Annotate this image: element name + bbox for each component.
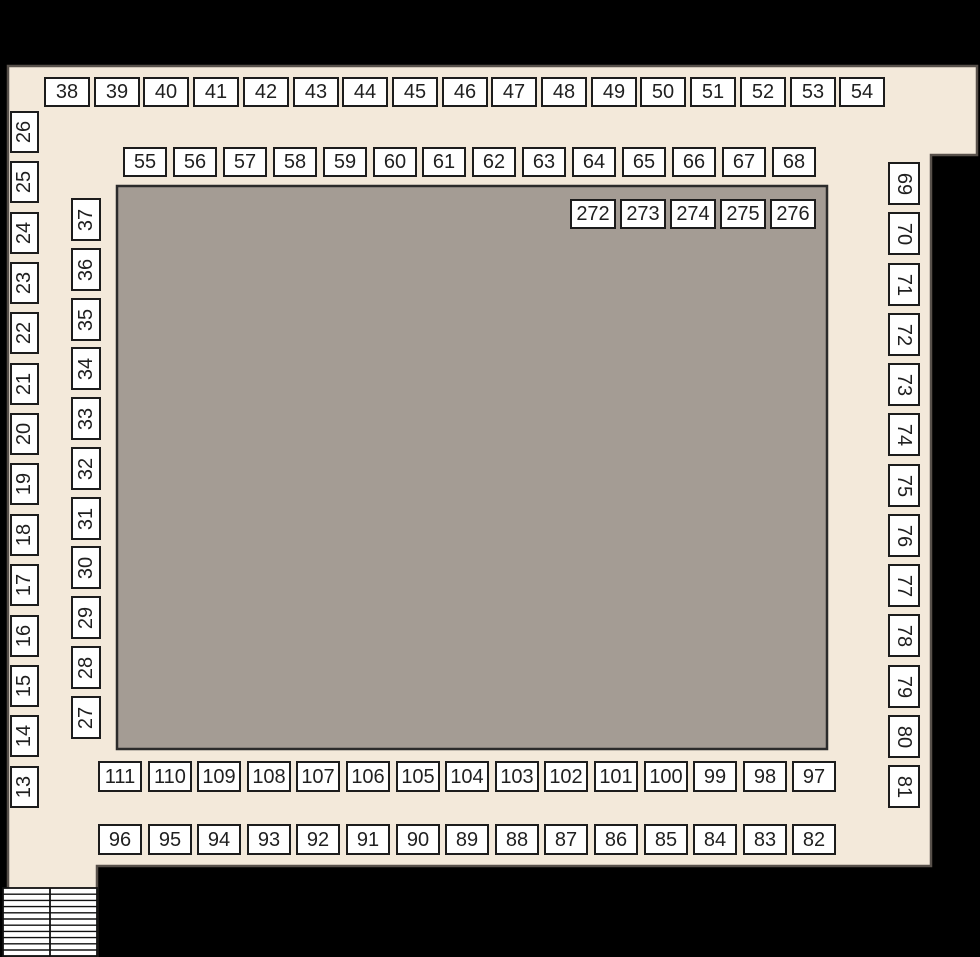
booth-number-label: 21	[15, 373, 35, 395]
booth-91[interactable]: 91	[346, 824, 390, 855]
booth-70[interactable]: 70	[888, 212, 920, 255]
booth-number-label: 59	[334, 152, 356, 172]
booth-number-label: 77	[894, 574, 914, 596]
booth-42[interactable]: 42	[243, 77, 289, 107]
booth-number-label: 14	[15, 725, 35, 747]
booth-number-label: 56	[184, 152, 206, 172]
booth-68[interactable]: 68	[772, 147, 816, 177]
booth-number-label: 23	[15, 272, 35, 294]
booth-60[interactable]: 60	[373, 147, 417, 177]
booth-40[interactable]: 40	[143, 77, 189, 107]
booth-96[interactable]: 96	[98, 824, 142, 855]
booth-57[interactable]: 57	[223, 147, 267, 177]
booth-number-label: 47	[503, 82, 525, 102]
booth-number-label: 31	[76, 507, 96, 529]
booth-number-label: 58	[284, 152, 306, 172]
booth-72[interactable]: 72	[888, 313, 920, 356]
booth-95[interactable]: 95	[148, 824, 192, 855]
booth-110[interactable]: 110	[148, 761, 192, 792]
booth-number-label: 94	[208, 830, 230, 850]
booth-number-label: 62	[483, 152, 505, 172]
booth-number-label: 67	[733, 152, 755, 172]
booth-number-label: 54	[851, 82, 873, 102]
booth-45[interactable]: 45	[392, 77, 438, 107]
booth-number-label: 32	[76, 457, 96, 479]
booth-number-label: 83	[754, 830, 776, 850]
booth-37[interactable]: 37	[71, 198, 101, 241]
booth-number-label: 275	[726, 204, 759, 224]
booth-16[interactable]: 16	[10, 615, 39, 657]
booth-number-label: 74	[894, 423, 914, 445]
booth-number-label: 34	[76, 357, 96, 379]
booth-number-label: 100	[649, 767, 682, 787]
booth-number-label: 40	[155, 82, 177, 102]
booth-101[interactable]: 101	[594, 761, 638, 792]
booth-number-label: 64	[583, 152, 605, 172]
booth-103[interactable]: 103	[495, 761, 539, 792]
booth-43[interactable]: 43	[293, 77, 339, 107]
booth-number-label: 72	[894, 323, 914, 345]
booth-number-label: 78	[894, 624, 914, 646]
booth-102[interactable]: 102	[544, 761, 588, 792]
booth-73[interactable]: 73	[888, 363, 920, 406]
booth-87[interactable]: 87	[544, 824, 588, 855]
booth-58[interactable]: 58	[273, 147, 317, 177]
booth-52[interactable]: 52	[740, 77, 786, 107]
booth-number-label: 24	[15, 222, 35, 244]
booth-number-label: 106	[351, 767, 384, 787]
booth-number-label: 39	[106, 82, 128, 102]
booth-34[interactable]: 34	[71, 347, 101, 390]
booth-number-label: 51	[702, 82, 724, 102]
booth-number-label: 274	[676, 204, 709, 224]
booth-number-label: 50	[652, 82, 674, 102]
booth-number-label: 43	[305, 82, 327, 102]
booth-81[interactable]: 81	[888, 765, 920, 808]
booth-number-label: 273	[626, 204, 659, 224]
booth-109[interactable]: 109	[197, 761, 241, 792]
booth-78[interactable]: 78	[888, 614, 920, 657]
booth-number-label: 46	[454, 82, 476, 102]
booth-47[interactable]: 47	[491, 77, 537, 107]
booth-number-label: 75	[894, 474, 914, 496]
booth-number-label: 87	[555, 830, 577, 850]
booth-number-label: 102	[549, 767, 582, 787]
booth-51[interactable]: 51	[690, 77, 736, 107]
booth-number-label: 17	[15, 574, 35, 596]
booth-number-label: 73	[894, 373, 914, 395]
booth-67[interactable]: 67	[722, 147, 766, 177]
booth-69[interactable]: 69	[888, 162, 920, 205]
booth-number-label: 68	[783, 152, 805, 172]
booth-number-label: 48	[553, 82, 575, 102]
booth-62[interactable]: 62	[472, 147, 516, 177]
booth-88[interactable]: 88	[495, 824, 539, 855]
booth-13[interactable]: 13	[10, 766, 39, 808]
booth-56[interactable]: 56	[173, 147, 217, 177]
booth-63[interactable]: 63	[522, 147, 566, 177]
booth-25[interactable]: 25	[10, 161, 39, 203]
booth-number-label: 16	[15, 625, 35, 647]
booth-number-label: 35	[76, 308, 96, 330]
booth-93[interactable]: 93	[247, 824, 291, 855]
booth-number-label: 26	[15, 121, 35, 143]
booth-22[interactable]: 22	[10, 312, 39, 354]
booth-number-label: 85	[655, 830, 677, 850]
booth-48[interactable]: 48	[541, 77, 587, 107]
booth-number-label: 41	[205, 82, 227, 102]
booth-number-label: 33	[76, 407, 96, 429]
booth-20[interactable]: 20	[10, 413, 39, 455]
booth-number-label: 82	[803, 830, 825, 850]
booth-number-label: 18	[15, 524, 35, 546]
booth-24[interactable]: 24	[10, 212, 39, 254]
booth-number-label: 98	[754, 767, 776, 787]
booth-74[interactable]: 74	[888, 413, 920, 456]
booth-55[interactable]: 55	[123, 147, 167, 177]
booth-number-label: 52	[752, 82, 774, 102]
booth-number-label: 29	[76, 606, 96, 628]
booth-75[interactable]: 75	[888, 464, 920, 507]
booth-276[interactable]: 276	[770, 199, 816, 229]
booth-17[interactable]: 17	[10, 564, 39, 606]
booth-105[interactable]: 105	[396, 761, 440, 792]
booth-108[interactable]: 108	[247, 761, 291, 792]
booth-number-label: 60	[384, 152, 406, 172]
booth-65[interactable]: 65	[622, 147, 666, 177]
booth-number-label: 15	[15, 675, 35, 697]
booth-number-label: 84	[704, 830, 726, 850]
booth-86[interactable]: 86	[594, 824, 638, 855]
booth-80[interactable]: 80	[888, 715, 920, 758]
booth-274[interactable]: 274	[670, 199, 716, 229]
booth-90[interactable]: 90	[396, 824, 440, 855]
booth-44[interactable]: 44	[342, 77, 388, 107]
booth-99[interactable]: 99	[693, 761, 737, 792]
exhibition-floorplan: 3839404142434445464748495051525354555657…	[0, 0, 980, 957]
booth-number-label: 111	[105, 767, 135, 787]
booth-107[interactable]: 107	[296, 761, 340, 792]
booth-14[interactable]: 14	[10, 715, 39, 757]
booth-number-label: 65	[633, 152, 655, 172]
booth-number-label: 79	[894, 675, 914, 697]
booth-number-label: 80	[894, 725, 914, 747]
booth-31[interactable]: 31	[71, 497, 101, 540]
booth-number-label: 89	[456, 830, 478, 850]
booth-26[interactable]: 26	[10, 111, 39, 153]
booth-30[interactable]: 30	[71, 546, 101, 589]
booth-number-label: 27	[76, 706, 96, 728]
booth-number-label: 91	[357, 830, 379, 850]
booth-number-label: 107	[301, 767, 334, 787]
booth-98[interactable]: 98	[743, 761, 787, 792]
booth-number-label: 44	[354, 82, 376, 102]
booth-89[interactable]: 89	[445, 824, 489, 855]
booth-number-label: 96	[109, 830, 131, 850]
booth-number-label: 92	[307, 830, 329, 850]
booth-number-label: 25	[15, 171, 35, 193]
booth-15[interactable]: 15	[10, 665, 39, 707]
booth-number-label: 93	[258, 830, 280, 850]
booth-number-label: 109	[202, 767, 235, 787]
booth-number-label: 19	[15, 473, 35, 495]
booth-number-label: 22	[15, 322, 35, 344]
booth-32[interactable]: 32	[71, 447, 101, 490]
booth-number-label: 36	[76, 258, 96, 280]
booth-84[interactable]: 84	[693, 824, 737, 855]
booth-28[interactable]: 28	[71, 646, 101, 689]
booth-273[interactable]: 273	[620, 199, 666, 229]
booth-272[interactable]: 272	[570, 199, 616, 229]
booth-100[interactable]: 100	[644, 761, 688, 792]
booth-number-label: 103	[500, 767, 533, 787]
booth-106[interactable]: 106	[346, 761, 390, 792]
booth-number-label: 90	[407, 830, 429, 850]
booth-38[interactable]: 38	[44, 77, 90, 107]
booth-39[interactable]: 39	[94, 77, 140, 107]
booth-number-label: 104	[450, 767, 483, 787]
booth-35[interactable]: 35	[71, 298, 101, 341]
stairs-icon	[3, 888, 97, 956]
booth-number-label: 61	[433, 152, 455, 172]
booth-number-label: 28	[76, 656, 96, 678]
booth-number-label: 110	[154, 767, 186, 787]
booth-number-label: 81	[894, 775, 914, 797]
booth-29[interactable]: 29	[71, 596, 101, 639]
booth-number-label: 69	[894, 172, 914, 194]
booth-number-label: 20	[15, 423, 35, 445]
booth-number-label: 97	[803, 767, 825, 787]
booth-97[interactable]: 97	[792, 761, 836, 792]
booth-number-label: 88	[506, 830, 528, 850]
booth-53[interactable]: 53	[790, 77, 836, 107]
booth-27[interactable]: 27	[71, 696, 101, 739]
booth-number-label: 42	[255, 82, 277, 102]
booth-number-label: 108	[252, 767, 285, 787]
booth-number-label: 101	[599, 767, 632, 787]
booth-33[interactable]: 33	[71, 397, 101, 440]
exhibit-hall-area	[117, 186, 827, 749]
booth-23[interactable]: 23	[10, 262, 39, 304]
booth-21[interactable]: 21	[10, 363, 39, 405]
booth-number-label: 37	[76, 208, 96, 230]
booth-number-label: 105	[401, 767, 434, 787]
booth-59[interactable]: 59	[323, 147, 367, 177]
booth-number-label: 55	[134, 152, 156, 172]
booth-104[interactable]: 104	[445, 761, 489, 792]
booth-number-label: 30	[76, 556, 96, 578]
booth-number-label: 70	[894, 222, 914, 244]
booth-number-label: 63	[533, 152, 555, 172]
booth-number-label: 38	[56, 82, 78, 102]
booth-number-label: 276	[776, 204, 809, 224]
booth-number-label: 86	[605, 830, 627, 850]
floorplan-background	[0, 0, 980, 957]
booth-111[interactable]: 111	[98, 761, 142, 792]
booth-41[interactable]: 41	[193, 77, 239, 107]
booth-19[interactable]: 19	[10, 463, 39, 505]
booth-number-label: 57	[234, 152, 256, 172]
booth-71[interactable]: 71	[888, 263, 920, 306]
booth-83[interactable]: 83	[743, 824, 787, 855]
booth-46[interactable]: 46	[442, 77, 488, 107]
booth-number-label: 53	[802, 82, 824, 102]
booth-number-label: 99	[704, 767, 726, 787]
booth-85[interactable]: 85	[644, 824, 688, 855]
booth-76[interactable]: 76	[888, 514, 920, 557]
booth-49[interactable]: 49	[591, 77, 637, 107]
booth-36[interactable]: 36	[71, 248, 101, 291]
booth-18[interactable]: 18	[10, 514, 39, 556]
booth-66[interactable]: 66	[672, 147, 716, 177]
booth-94[interactable]: 94	[197, 824, 241, 855]
booth-number-label: 13	[15, 776, 35, 798]
booth-61[interactable]: 61	[422, 147, 466, 177]
booth-82[interactable]: 82	[792, 824, 836, 855]
booth-275[interactable]: 275	[720, 199, 766, 229]
booth-79[interactable]: 79	[888, 665, 920, 708]
booth-number-label: 95	[159, 830, 181, 850]
booth-92[interactable]: 92	[296, 824, 340, 855]
booth-number-label: 76	[894, 524, 914, 546]
booth-number-label: 71	[894, 273, 914, 295]
booth-number-label: 49	[603, 82, 625, 102]
booth-77[interactable]: 77	[888, 564, 920, 607]
booth-64[interactable]: 64	[572, 147, 616, 177]
booth-50[interactable]: 50	[640, 77, 686, 107]
booth-54[interactable]: 54	[839, 77, 885, 107]
booth-number-label: 45	[404, 82, 426, 102]
booth-number-label: 272	[576, 204, 609, 224]
booth-number-label: 66	[683, 152, 705, 172]
